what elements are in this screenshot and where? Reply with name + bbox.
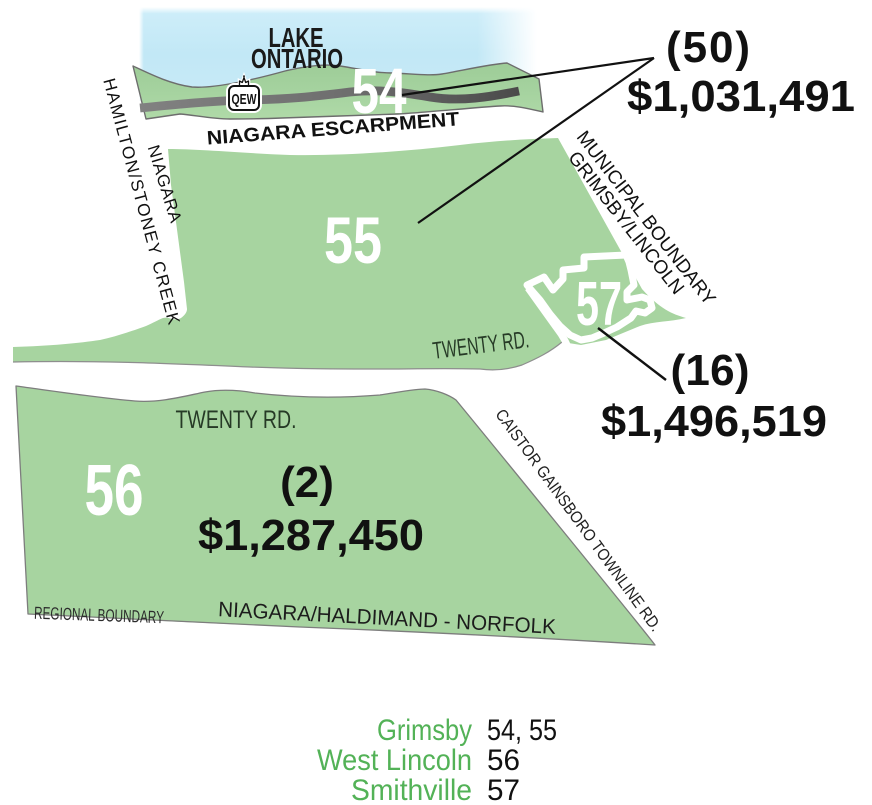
svg-text:(2): (2) — [280, 458, 334, 507]
svg-text:54, 55: 54, 55 — [487, 714, 557, 747]
svg-text:$1,031,491: $1,031,491 — [627, 72, 855, 121]
svg-text:West Lincoln: West Lincoln — [317, 744, 472, 777]
svg-text:TWENTY RD.: TWENTY RD. — [176, 406, 297, 434]
svg-text:56: 56 — [487, 744, 520, 777]
svg-text:ONTARIO: ONTARIO — [251, 43, 343, 74]
svg-text:Smithville: Smithville — [351, 774, 472, 805]
svg-text:Grimsby: Grimsby — [377, 714, 472, 747]
svg-text:57: 57 — [487, 774, 520, 805]
svg-text:56: 56 — [85, 451, 144, 531]
svg-text:(50): (50) — [666, 23, 750, 72]
svg-text:QEW: QEW — [232, 91, 258, 108]
svg-text:55: 55 — [324, 203, 382, 277]
svg-text:$1,496,519: $1,496,519 — [601, 397, 827, 446]
svg-text:(16): (16) — [671, 346, 750, 395]
svg-text:$1,287,450: $1,287,450 — [198, 511, 424, 560]
